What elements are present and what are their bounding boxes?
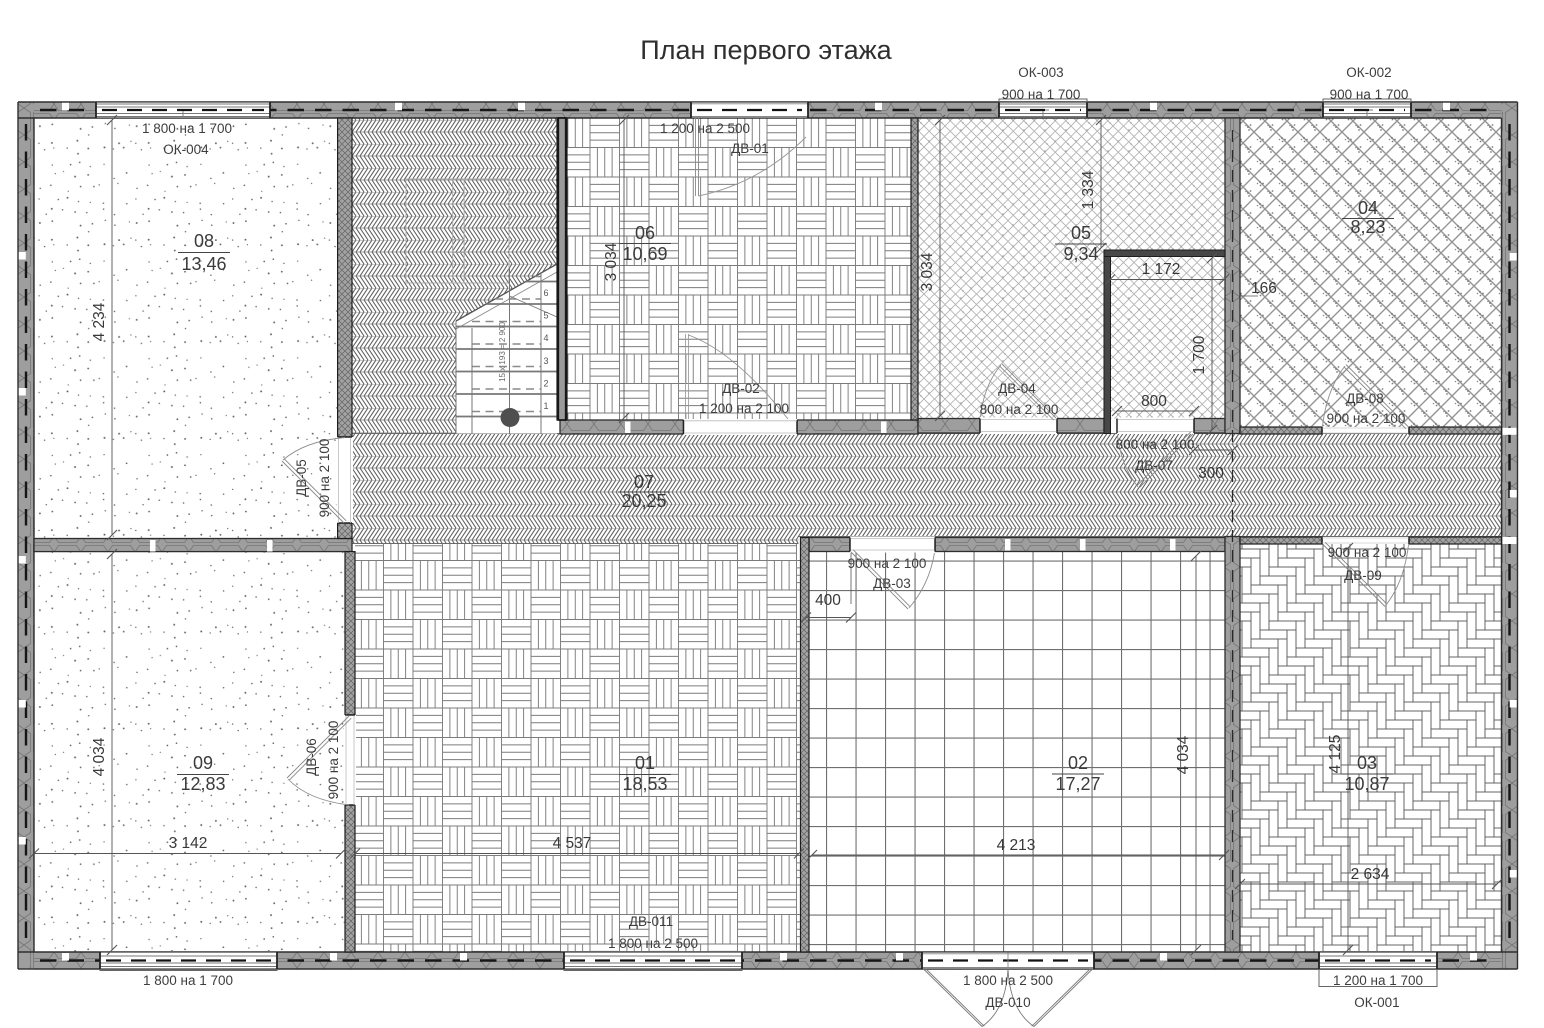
svg-text:ДВ-04: ДВ-04	[998, 381, 1036, 396]
svg-text:6: 6	[543, 288, 548, 298]
svg-text:1 200 на 1 700: 1 200 на 1 700	[1333, 973, 1423, 988]
svg-text:01: 01	[635, 753, 655, 773]
svg-text:1 700: 1 700	[1191, 335, 1208, 374]
svg-text:4 125: 4 125	[1327, 735, 1344, 774]
svg-text:ДВ-03: ДВ-03	[873, 576, 911, 591]
svg-text:08: 08	[194, 231, 214, 251]
svg-text:3 142: 3 142	[169, 835, 208, 852]
svg-text:1 172: 1 172	[1142, 261, 1181, 278]
svg-text:300: 300	[1198, 465, 1224, 482]
svg-text:ОК-004: ОК-004	[163, 142, 209, 157]
svg-text:1 200 на 2 500: 1 200 на 2 500	[660, 121, 750, 136]
svg-text:06: 06	[635, 223, 655, 243]
svg-text:1: 1	[543, 401, 548, 411]
svg-text:ОК-003: ОК-003	[1018, 65, 1063, 80]
svg-text:15 x 193 = 2 900: 15 x 193 = 2 900	[498, 322, 507, 382]
svg-text:04: 04	[1358, 198, 1378, 218]
svg-text:05: 05	[1071, 223, 1091, 243]
svg-text:2: 2	[543, 378, 548, 388]
svg-text:12,83: 12,83	[180, 774, 225, 794]
svg-text:800: 800	[1141, 393, 1167, 410]
svg-text:5: 5	[543, 311, 548, 321]
svg-text:ДВ-05: ДВ-05	[294, 459, 309, 497]
svg-text:2 634: 2 634	[1351, 866, 1390, 883]
svg-text:1 800 на 1 700: 1 800 на 1 700	[142, 121, 232, 136]
svg-text:План первого этажа: План первого этажа	[640, 35, 892, 65]
svg-text:20,25: 20,25	[621, 491, 666, 511]
svg-text:9,34: 9,34	[1063, 244, 1098, 264]
svg-text:900 на 2 100: 900 на 2 100	[1327, 411, 1406, 426]
svg-text:ОК-001: ОК-001	[1354, 995, 1399, 1010]
svg-text:ОК-002: ОК-002	[1346, 65, 1391, 80]
svg-text:3: 3	[543, 356, 548, 366]
svg-text:ДВ-02: ДВ-02	[722, 381, 760, 396]
svg-text:4 034: 4 034	[91, 737, 108, 776]
svg-text:8,23: 8,23	[1350, 217, 1385, 237]
svg-text:ДВ-011: ДВ-011	[629, 914, 673, 929]
svg-text:10,69: 10,69	[622, 244, 667, 264]
svg-text:1 200 на 2 100: 1 200 на 2 100	[699, 401, 789, 416]
svg-text:166: 166	[1251, 280, 1277, 297]
svg-text:900 на 2 100: 900 на 2 100	[1328, 545, 1407, 560]
svg-text:800 на 2 100: 800 на 2 100	[980, 402, 1059, 417]
svg-text:900 на 1 700: 900 на 1 700	[1002, 87, 1081, 102]
svg-text:4: 4	[543, 333, 548, 343]
svg-text:900 на 1 700: 900 на 1 700	[1330, 87, 1409, 102]
svg-text:4 537: 4 537	[553, 835, 592, 852]
svg-text:800 на 2 100: 800 на 2 100	[1116, 437, 1195, 452]
svg-text:4 034: 4 034	[1175, 735, 1192, 774]
svg-text:ДВ-06: ДВ-06	[304, 738, 319, 776]
svg-text:4 213: 4 213	[997, 837, 1036, 854]
svg-text:1 334: 1 334	[1080, 170, 1097, 209]
svg-text:900 на 2 100: 900 на 2 100	[317, 439, 332, 518]
svg-text:ДВ-07: ДВ-07	[1135, 458, 1173, 473]
svg-text:17,27: 17,27	[1055, 774, 1100, 794]
svg-text:900 на 2 100: 900 на 2 100	[848, 556, 927, 571]
svg-text:ДВ-01: ДВ-01	[731, 141, 769, 156]
svg-text:07: 07	[634, 472, 654, 492]
svg-text:18,53: 18,53	[622, 774, 667, 794]
svg-text:3 034: 3 034	[603, 242, 620, 281]
svg-text:900 на 2 100: 900 на 2 100	[326, 721, 341, 800]
svg-text:4 234: 4 234	[91, 302, 108, 341]
svg-text:10,87: 10,87	[1344, 774, 1389, 794]
svg-text:03: 03	[1357, 753, 1377, 773]
svg-text:09: 09	[193, 753, 213, 773]
svg-text:02: 02	[1068, 753, 1088, 773]
svg-text:400: 400	[815, 592, 841, 609]
svg-text:ДВ-08: ДВ-08	[1346, 391, 1384, 406]
svg-text:1 800 на 2 500: 1 800 на 2 500	[608, 936, 698, 951]
svg-text:ДВ-010: ДВ-010	[985, 995, 1030, 1010]
svg-text:1 800 на 2 500: 1 800 на 2 500	[963, 973, 1053, 988]
svg-text:1 800 на 1 700: 1 800 на 1 700	[143, 973, 233, 988]
svg-text:3 034: 3 034	[919, 252, 936, 291]
svg-text:13,46: 13,46	[181, 254, 226, 274]
svg-text:ДВ-09: ДВ-09	[1344, 568, 1382, 583]
